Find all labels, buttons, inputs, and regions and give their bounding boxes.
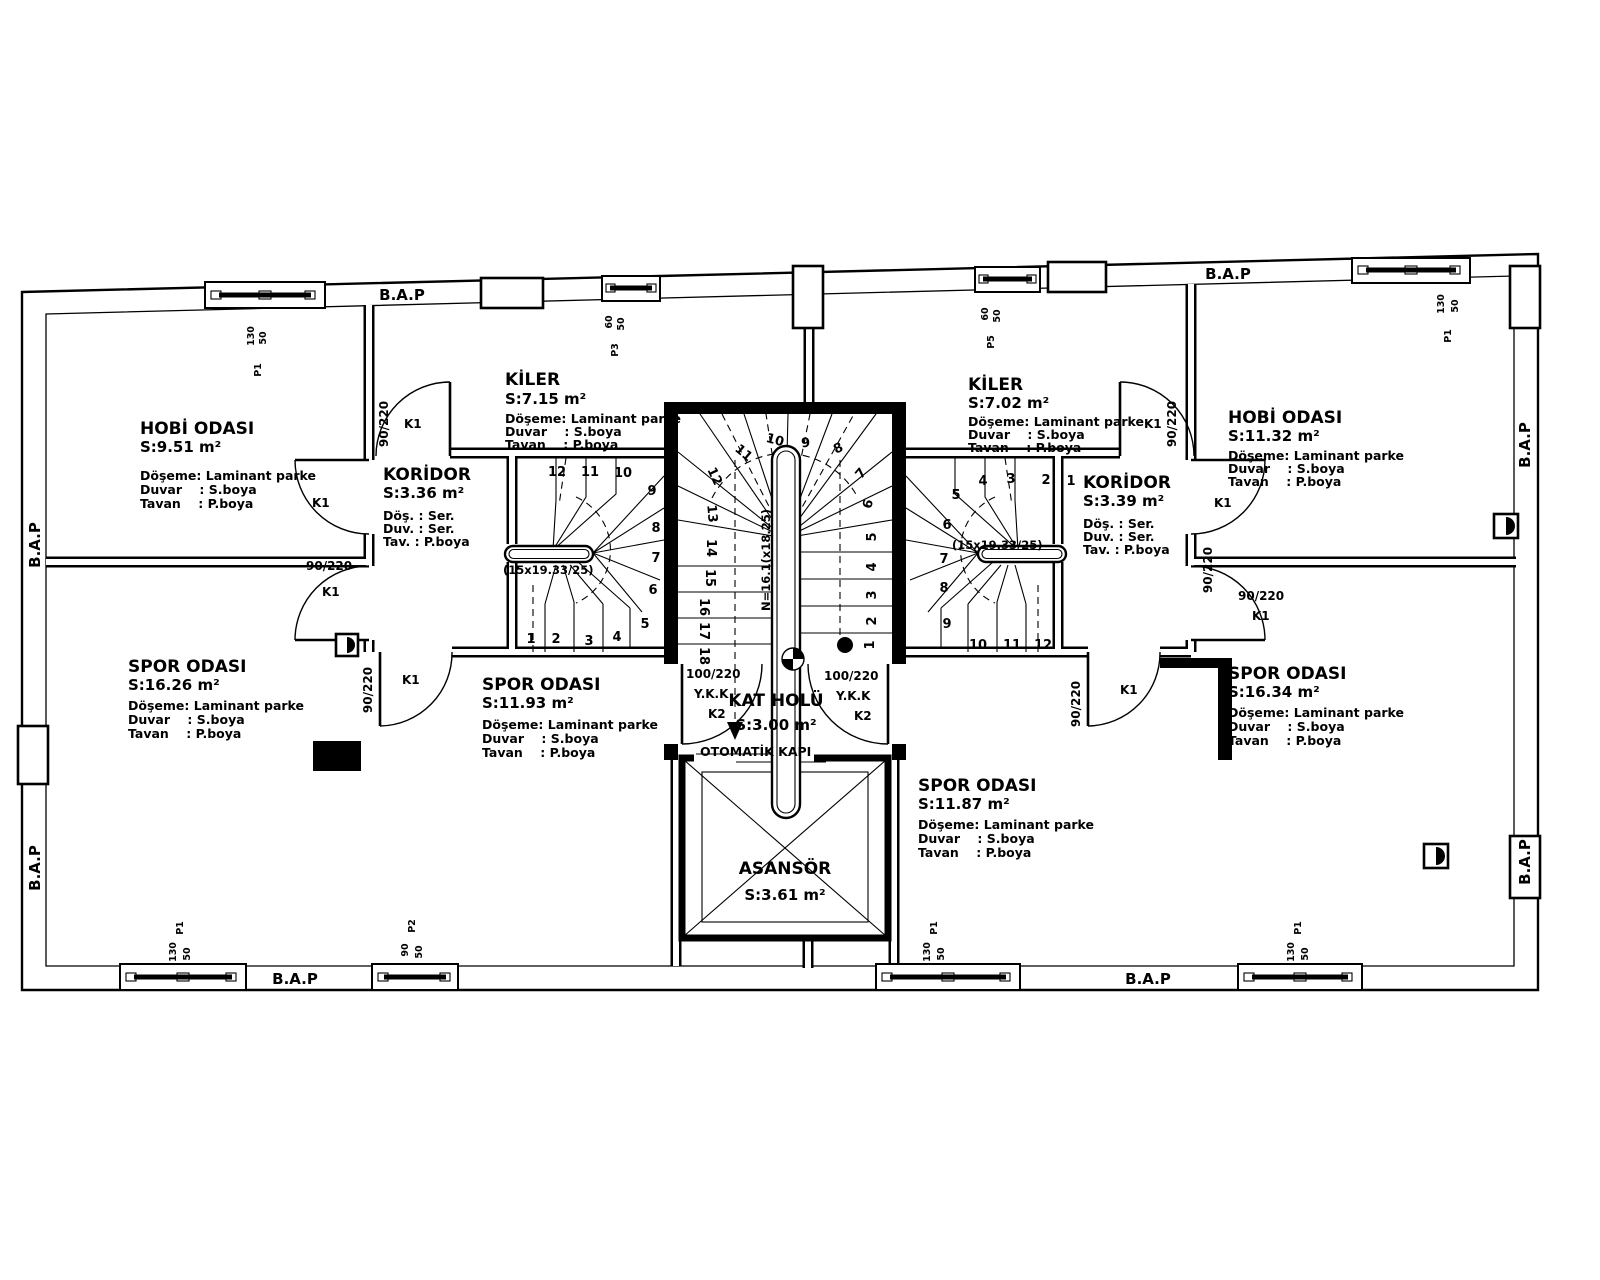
step-number: 7 xyxy=(939,552,948,567)
room-area: S:7.02 m² xyxy=(968,394,1049,412)
step-number: 4 xyxy=(612,630,621,645)
room-name: KORİDOR xyxy=(1083,471,1171,493)
room-area: S:3.61 m² xyxy=(744,886,825,904)
room-finish-floor: Döşeme: Laminant parke xyxy=(1228,705,1404,720)
window-width-label: 60 xyxy=(980,307,991,321)
stair-note: (15x19.33/25) xyxy=(503,563,594,577)
window-height-label: 50 xyxy=(936,947,947,961)
room-labels: HOBİ ODASI S:9.51 m² Döşeme: Laminant pa… xyxy=(128,368,1404,904)
window-top-right xyxy=(1352,258,1470,283)
window-tag-label: P2 xyxy=(407,919,418,933)
door-spor-left xyxy=(295,566,369,640)
window-tag-label: P1 xyxy=(929,921,940,935)
room-label-kiler-left: KİLER S:7.15 m² Döşeme: Laminant parke D… xyxy=(505,368,681,452)
step-number: 5 xyxy=(865,532,880,541)
door-size-label: 90/220 xyxy=(377,401,391,447)
door-ykk-label: Y.K.K xyxy=(693,687,729,701)
floor-plan-page: HOBİ ODASI S:9.51 m² Döşeme: Laminant pa… xyxy=(0,0,1600,1280)
step-number: 10 xyxy=(969,638,987,653)
door-size-label: 90/220 xyxy=(1238,589,1284,603)
window-top-left xyxy=(205,282,325,308)
window-height-label: 50 xyxy=(992,309,1003,323)
room-finish-floor: Döşeme: Laminant parke xyxy=(128,698,304,713)
step-number: 5 xyxy=(640,617,649,632)
door-ykk-label: Y.K.K xyxy=(835,689,871,703)
door-type-label: K1 xyxy=(404,417,422,431)
room-area: S:11.32 m² xyxy=(1228,427,1320,445)
room-name: SPOR ODASI xyxy=(918,776,1036,796)
room-label-hobi-left: HOBİ ODASI S:9.51 m² Döşeme: Laminant pa… xyxy=(140,417,316,511)
bap-label: B.A.P xyxy=(272,970,318,988)
step-number: 3 xyxy=(865,590,880,599)
room-label-spor-right: SPOR ODASI S:16.34 m² Döşeme: Laminant p… xyxy=(1228,664,1404,748)
step-number: 18 xyxy=(696,647,711,665)
room-area: S:16.34 m² xyxy=(1228,683,1320,701)
door-type-label: K1 xyxy=(322,585,340,599)
step-number: 2 xyxy=(865,616,880,625)
room-name: KAT HOLÜ xyxy=(728,689,823,711)
window-height-label: 50 xyxy=(1450,299,1461,313)
room-finish-ceiling: Tavan : P.boya xyxy=(128,726,241,741)
step-number: 1 xyxy=(863,640,878,649)
step-number: 1 xyxy=(526,632,535,647)
door-type-label: K1 xyxy=(312,496,330,510)
bap-label: B.A.P xyxy=(1516,839,1534,885)
step-number: 3 xyxy=(1006,472,1015,487)
room-name: ASANSÖR xyxy=(739,857,832,879)
room-finish-ceiling: Tavan : P.boya xyxy=(1228,474,1341,489)
step-number: 5 xyxy=(951,488,960,503)
step-number: 6 xyxy=(860,498,877,511)
room-name: HOBİ ODASI xyxy=(1228,406,1342,428)
room-finish-ceiling: Tav. : P.boya xyxy=(383,534,470,549)
step-number: 12 xyxy=(704,465,725,488)
room-finish-ceiling: Tavan : P.boya xyxy=(482,745,595,760)
room-name: KİLER xyxy=(505,368,560,390)
step-number: 8 xyxy=(651,521,660,536)
window-top-small-right xyxy=(975,267,1040,292)
step-number: 11 xyxy=(581,465,599,480)
room-area: S:7.15 m² xyxy=(505,390,586,408)
room-label-spor-center: SPOR ODASI S:11.93 m² Döşeme: Laminant p… xyxy=(482,675,658,760)
window-width-label: 130 xyxy=(1436,294,1447,314)
room-finish-wall: Duvar : S.boya xyxy=(1228,719,1345,734)
bap-label: B.A.P xyxy=(26,522,44,568)
door-size-label: 90/220 xyxy=(1201,547,1215,593)
room-finish-floor: Döşeme: Laminant parke xyxy=(482,717,658,732)
step-number: 6 xyxy=(648,583,657,598)
room-name: KİLER xyxy=(968,373,1023,395)
door-type-label: K1 xyxy=(1144,417,1162,431)
room-label-spor-center-right: SPOR ODASI S:11.87 m² Döşeme: Laminant p… xyxy=(918,776,1094,860)
fixture-icon xyxy=(336,634,358,656)
step-number: 2 xyxy=(551,632,560,647)
window-height-label: 50 xyxy=(182,947,193,961)
room-label-spor-left: SPOR ODASI S:16.26 m² Döşeme: Laminant p… xyxy=(128,657,304,741)
window-bottom-right2 xyxy=(876,964,1020,990)
room-name: SPOR ODASI xyxy=(128,657,246,677)
room-area: S:16.26 m² xyxy=(128,676,220,694)
window-height-label: 50 xyxy=(616,317,627,331)
step-number: 4 xyxy=(978,474,987,489)
window-height-label: 50 xyxy=(1300,947,1311,961)
step-number: 16 xyxy=(696,598,711,616)
room-finish-wall: Duvar : S.boya xyxy=(918,831,1035,846)
stair-note: (15x19.33/25) xyxy=(952,538,1043,552)
room-finish-floor: Döşeme: Laminant parke xyxy=(140,468,316,483)
step-number: 12 xyxy=(1034,638,1052,653)
step-number: 9 xyxy=(801,436,811,452)
door-spor-center-left xyxy=(380,652,452,726)
door-size-label: 90/220 xyxy=(1069,681,1083,727)
step-number: 7 xyxy=(651,551,660,566)
step-number: 8 xyxy=(831,440,846,457)
room-label-koridor-right: KORİDOR S:3.39 m² Döş. : Ser. Duv. : Ser… xyxy=(1083,471,1171,557)
step-number: 9 xyxy=(647,484,656,499)
door-size-label: 100/220 xyxy=(686,667,740,681)
room-name: HOBİ ODASI xyxy=(140,417,254,439)
door-type-label: K1 xyxy=(1120,683,1138,697)
bap-label: B.A.P xyxy=(379,286,425,304)
room-finish-ceiling: Tav. : P.boya xyxy=(1083,542,1170,557)
step-number: 6 xyxy=(942,518,951,533)
room-finish-ceiling: Tavan : P.boya xyxy=(918,845,1031,860)
window-tag-label: P1 xyxy=(1443,329,1454,343)
window-bottom-left2 xyxy=(372,964,458,990)
otomatik-kapi-label: OTOMATİK KAPI xyxy=(700,744,811,759)
door-size-label: 90/220 xyxy=(1165,401,1179,447)
window-height-label: 50 xyxy=(414,945,425,959)
bap-label: B.A.P xyxy=(1125,970,1171,988)
room-finish-ceiling: Tavan : P.boya xyxy=(505,437,618,452)
step-number: 9 xyxy=(942,617,951,632)
door-type-label: K1 xyxy=(1252,609,1270,623)
window-tag-label: P1 xyxy=(253,363,264,377)
floor-plan-canvas: HOBİ ODASI S:9.51 m² Döşeme: Laminant pa… xyxy=(0,0,1600,1280)
door-size-label: 90/220 xyxy=(306,559,352,573)
window-tag-label: P1 xyxy=(1293,921,1304,935)
step-number: 2 xyxy=(1041,473,1050,488)
room-area: S:11.87 m² xyxy=(918,795,1010,813)
room-area: S:3.00 m² xyxy=(735,716,816,734)
step-number: 12 xyxy=(548,465,566,480)
window-width-label: 130 xyxy=(168,942,179,962)
room-finish-ceiling: Tavan : P.boya xyxy=(968,440,1081,455)
step-number: 1 xyxy=(1066,474,1075,489)
step-number: 3 xyxy=(584,634,593,649)
room-finish-floor: Döşeme: Laminant parke xyxy=(918,817,1094,832)
room-label-koridor-left: KORİDOR S:3.36 m² Döş. : Ser. Duv. : Ser… xyxy=(383,463,471,549)
window-tag-label: P1 xyxy=(175,921,186,935)
room-finish-wall: Duvar : S.boya xyxy=(482,731,599,746)
fixture-icon xyxy=(1424,844,1448,868)
step-number: 10 xyxy=(614,466,632,481)
door-type-label: K2 xyxy=(854,709,872,723)
door-size-label: 90/220 xyxy=(361,667,375,713)
step-number: 4 xyxy=(865,562,880,571)
fixture-icon xyxy=(1494,514,1518,538)
door-type-label: K1 xyxy=(1214,496,1232,510)
step-number: 11 xyxy=(1003,638,1021,653)
step-number: 14 xyxy=(703,539,718,557)
benchmark-symbol xyxy=(782,648,804,670)
bap-label: B.A.P xyxy=(1516,422,1534,468)
room-finish-wall: Duvar : S.boya xyxy=(128,712,245,727)
room-area: S:3.36 m² xyxy=(383,484,464,502)
step-number: 13 xyxy=(703,504,720,523)
door-size-label: 100/220 xyxy=(824,669,878,683)
room-area: S:9.51 m² xyxy=(140,438,221,456)
room-area: S:11.93 m² xyxy=(482,694,574,712)
bap-label: B.A.P xyxy=(26,845,44,891)
window-width-label: 90 xyxy=(400,943,411,957)
door-label-k2-right: 100/220 Y.K.K K2 xyxy=(824,669,878,723)
window-width-label: 130 xyxy=(922,942,933,962)
room-label-hobi-right: HOBİ ODASI S:11.32 m² Döşeme: Laminant p… xyxy=(1228,406,1404,489)
window-bottom-left xyxy=(120,964,246,990)
room-name: KORİDOR xyxy=(383,463,471,485)
bap-label: B.A.P xyxy=(1205,265,1251,283)
room-name: SPOR ODASI xyxy=(482,675,600,695)
step-number: 15 xyxy=(702,569,717,587)
room-finish-wall: Duvar : S.boya xyxy=(140,482,257,497)
room-label-asansor: ASANSÖR S:3.61 m² xyxy=(739,857,832,904)
window-top-small-left xyxy=(602,276,660,301)
room-finish-ceiling: Tavan : P.boya xyxy=(140,496,253,511)
window-width-label: 130 xyxy=(1286,942,1297,962)
room-finish-ceiling: Tavan : P.boya xyxy=(1228,733,1341,748)
door-type-label: K2 xyxy=(708,707,726,721)
window-tag-label: P3 xyxy=(610,343,621,357)
room-name: SPOR ODASI xyxy=(1228,664,1346,684)
window-width-label: 60 xyxy=(604,315,615,329)
room-label-kiler-right: KİLER S:7.02 m² Döşeme: Laminant parke D… xyxy=(968,373,1144,455)
stair-note-center: N=16.1(x18.25) xyxy=(759,509,773,611)
window-bottom-right xyxy=(1238,964,1362,990)
step-number: 7 xyxy=(853,465,870,482)
window-height-label: 50 xyxy=(258,331,269,345)
room-area: S:3.39 m² xyxy=(1083,492,1164,510)
step-number: 8 xyxy=(939,581,948,596)
window-tag-label: P5 xyxy=(986,335,997,349)
step-number: 10 xyxy=(764,431,785,450)
door-type-label: K1 xyxy=(402,673,420,687)
step-number: 17 xyxy=(696,622,711,640)
window-width-label: 130 xyxy=(246,326,257,346)
